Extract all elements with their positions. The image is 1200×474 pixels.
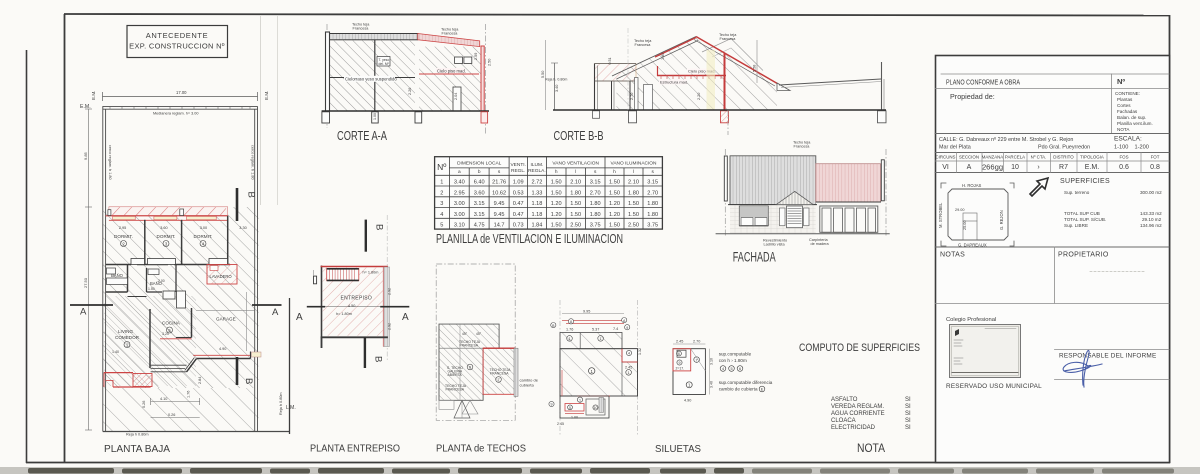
svg-text:1.80: 1.80 [647, 201, 658, 207]
svg-text:VANO ILUMINACION: VANO ILUMINACION [610, 161, 657, 167]
svg-text:Nº: Nº [437, 162, 446, 172]
svg-text:6: 6 [469, 366, 471, 370]
svg-text:10: 10 [594, 406, 598, 410]
svg-text:27.50: 27.50 [83, 277, 88, 288]
svg-text:2.95: 2.95 [454, 190, 465, 196]
svg-text:1.32: 1.32 [638, 348, 642, 355]
svg-text:NOTA: NOTA [1117, 127, 1130, 132]
svg-text:E.M.: E.M. [91, 91, 96, 100]
svg-text:PARCELA: PARCELA [1005, 155, 1025, 160]
svg-text:A: A [272, 307, 279, 318]
svg-text:2.26: 2.26 [408, 88, 412, 95]
svg-text:3.10: 3.10 [710, 358, 714, 365]
svg-text:h: h [555, 169, 558, 175]
svg-text:3.75: 3.75 [590, 223, 601, 229]
svg-text:Balan. de sup.: Balan. de sup. [1117, 115, 1146, 120]
svg-text:COMPUTO DE SUPERFICIES: COMPUTO DE SUPERFICIES [799, 342, 920, 354]
svg-text:VI: VI [942, 164, 949, 171]
svg-text:ILUM.: ILUM. [531, 162, 544, 168]
svg-text:FOT: FOT [1151, 155, 1160, 160]
svg-text:0.8: 0.8 [1150, 164, 1160, 171]
svg-text:1.20: 1.20 [551, 212, 562, 218]
svg-text:REGLA.: REGLA. [528, 168, 546, 174]
svg-text:cerco reglam. h 1.80: cerco reglam. h 1.80 [108, 145, 112, 180]
svg-text:B: B [373, 356, 384, 362]
svg-text:Pdo Gral. Pueyrredon: Pdo Gral. Pueyrredon [1038, 145, 1090, 151]
svg-text:4: 4 [440, 212, 443, 218]
svg-text:21.76: 21.76 [492, 180, 506, 186]
svg-text:2.45: 2.45 [557, 422, 564, 426]
svg-text:Francesa: Francesa [442, 32, 459, 36]
svg-text:1.50: 1.50 [551, 190, 562, 196]
svg-text:5.50: 5.50 [541, 71, 545, 78]
svg-text:Francesa: Francesa [720, 37, 737, 41]
svg-text:2.45: 2.45 [625, 366, 632, 370]
svg-text:3.40: 3.40 [555, 85, 559, 92]
svg-text:1: 1 [568, 337, 570, 341]
svg-text:1-100 1-200: 1-100 1-200 [1114, 145, 1149, 151]
svg-text:CORTE A-A: CORTE A-A [337, 128, 387, 143]
svg-text:SI: SI [905, 397, 911, 403]
svg-text:BAÑO: BAÑO [111, 273, 124, 278]
svg-text:29.00: 29.00 [955, 208, 965, 212]
svg-text:1.20: 1.20 [609, 201, 620, 207]
svg-text:CIRCUNS: CIRCUNS [935, 155, 955, 160]
svg-text:1.50: 1.50 [628, 201, 639, 207]
svg-text:0.53: 0.53 [513, 190, 524, 196]
svg-text:2.04: 2.04 [454, 93, 458, 100]
svg-text:ESCALA:: ESCALA: [1114, 136, 1142, 143]
svg-text:1.80: 1.80 [590, 212, 601, 218]
svg-text:1.76: 1.76 [187, 391, 191, 398]
svg-text:2.70: 2.70 [647, 190, 658, 196]
svg-text:Cortes: Cortes [1117, 103, 1131, 108]
svg-text:1.76: 1.76 [566, 328, 573, 332]
svg-text:5.58: 5.58 [753, 65, 757, 72]
svg-text:SI: SI [905, 418, 911, 424]
svg-text:9.95: 9.95 [583, 310, 590, 314]
svg-text:1.80: 1.80 [570, 190, 581, 196]
svg-text:9.45: 9.45 [494, 212, 505, 218]
svg-text:2.50: 2.50 [628, 223, 639, 229]
svg-text:cambio de cubierta: cambio de cubierta [719, 387, 758, 392]
svg-text:1.40: 1.40 [112, 350, 119, 354]
svg-text:6: 6 [678, 352, 680, 356]
svg-text:0.26: 0.26 [142, 401, 146, 408]
svg-text:25.00: 25.00 [963, 220, 967, 230]
svg-text:1.50: 1.50 [570, 212, 581, 218]
svg-text:NOTAS: NOTAS [940, 252, 965, 259]
svg-text:45°: 45° [476, 332, 482, 336]
svg-text:A: A [402, 312, 409, 323]
svg-text:Francesa: Francesa [794, 145, 811, 149]
svg-text:300.00 m2: 300.00 m2 [1140, 190, 1162, 195]
svg-text:8: 8 [570, 320, 572, 324]
svg-text:0.6: 0.6 [1119, 164, 1129, 171]
svg-text:Reja h. 0.80m: Reja h. 0.80m [545, 78, 567, 82]
svg-text:ABIERTA: ABIERTA [448, 373, 463, 377]
svg-text:1.00: 1.00 [373, 113, 377, 120]
svg-text:1.50: 1.50 [609, 180, 620, 186]
svg-text:DORMIT.: DORMIT. [194, 234, 213, 239]
svg-text:PLANTA de TECHOS: PLANTA de TECHOS [436, 444, 526, 455]
svg-text:LAVADERO: LAVADERO [210, 274, 233, 279]
svg-text:h= 1.80m: h= 1.80m [363, 271, 379, 275]
svg-text:2.59: 2.59 [474, 53, 478, 60]
svg-text:2.70: 2.70 [590, 190, 601, 196]
svg-text:1.50: 1.50 [609, 223, 620, 229]
svg-text:B: B [374, 224, 385, 230]
svg-text:1.50: 1.50 [148, 287, 155, 291]
svg-text:a: a [458, 170, 461, 175]
svg-text:3.15: 3.15 [647, 180, 658, 186]
svg-text:3.15: 3.15 [474, 212, 485, 218]
svg-text:COMEDOR: COMEDOR [115, 335, 140, 340]
svg-text:4.75: 4.75 [474, 223, 485, 229]
svg-text:CONTIENE:: CONTIENE: [1115, 91, 1140, 96]
svg-text:3.20: 3.20 [162, 332, 169, 336]
svg-text:45°: 45° [462, 332, 468, 336]
svg-text:del. Mº: del. Mº [379, 62, 390, 66]
svg-text:Reja h 0.80m: Reja h 0.80m [126, 433, 149, 437]
svg-text:Sup. terreno: Sup. terreno [1064, 190, 1090, 195]
svg-text:2.10: 2.10 [628, 180, 639, 186]
svg-text:3.75: 3.75 [647, 223, 658, 229]
svg-text:9.45: 9.45 [494, 201, 505, 207]
svg-text:RESPONSABLE DEL INFORME: RESPONSABLE DEL INFORME [1059, 353, 1156, 360]
svg-text:2: 2 [440, 190, 443, 196]
svg-text:B: B [246, 192, 257, 198]
svg-text:FRANCESA: FRANCESA [460, 344, 479, 348]
svg-text:SI: SI [905, 411, 911, 417]
svg-text:DORMIT.: DORMIT. [114, 234, 133, 239]
svg-text:PLANILLA de VENTILACION E ILUM: PLANILLA de VENTILACION E ILUMINACION [436, 232, 623, 246]
svg-text:Medianera reglam. h= 3.00: Medianera reglam. h= 3.00 [153, 112, 199, 116]
svg-text:3.30: 3.30 [239, 226, 246, 230]
svg-text:Estructura mad.: Estructura mad. [660, 80, 688, 85]
svg-text:Nº: Nº [1117, 77, 1125, 86]
svg-text:LIVING: LIVING [118, 329, 133, 334]
svg-text:1.80: 1.80 [590, 201, 601, 207]
svg-text:SECCION: SECCION [959, 155, 979, 160]
svg-text:9: 9 [679, 361, 681, 365]
svg-text:NOTA: NOTA [857, 443, 885, 455]
svg-text:COCINA: COCINA [162, 321, 181, 326]
svg-text:CLOACA: CLOACA [831, 418, 856, 424]
svg-text:134.96 m2: 134.96 m2 [1140, 223, 1162, 228]
svg-text:E.M.: E.M. [1085, 164, 1099, 171]
svg-text:DIMENSION LOCAL: DIMENSION LOCAL [457, 161, 502, 167]
svg-text:VANO VENTILACION: VANO VENTILACION [552, 161, 599, 167]
svg-text:4.90: 4.90 [219, 347, 226, 351]
svg-text:Cielo piso mad.: Cielo piso mad. [437, 69, 466, 74]
svg-text:6: 6 [739, 367, 741, 371]
svg-text:0.51: 0.51 [608, 58, 612, 65]
svg-text:h: h [613, 169, 616, 175]
svg-text:1.20: 1.20 [551, 201, 562, 207]
svg-text:1.80: 1.80 [647, 212, 658, 218]
svg-text:4: 4 [628, 352, 630, 356]
svg-text:0.26: 0.26 [168, 413, 175, 417]
svg-text:1.18: 1.18 [531, 201, 542, 207]
svg-text:L.M.: L.M. [286, 405, 296, 411]
svg-text:2=17.: 2=17. [676, 367, 685, 371]
svg-text:1.84: 1.84 [531, 223, 542, 229]
svg-text:266gg: 266gg [982, 163, 1003, 172]
svg-text:H. ROJAS: H. ROJAS [962, 183, 982, 188]
svg-text:1.50: 1.50 [551, 223, 562, 229]
svg-text:Plantas: Plantas [1117, 97, 1133, 102]
svg-text:FACHADA: FACHADA [733, 250, 776, 265]
svg-text:Propiedad de:: Propiedad de: [950, 92, 995, 101]
svg-text:7.4: 7.4 [613, 327, 618, 331]
svg-text:Cielorraso yeso suspendido: Cielorraso yeso suspendido [345, 77, 397, 82]
svg-text:A: A [296, 312, 303, 323]
svg-text:Nº CTA.: Nº CTA. [1031, 155, 1047, 160]
svg-text:DORMIT.: DORMIT. [157, 234, 176, 239]
svg-text:9.85: 9.85 [83, 151, 88, 160]
svg-text:4.10: 4.10 [160, 397, 167, 401]
svg-text:17.00: 17.00 [176, 90, 187, 95]
svg-text:Mar del Plata: Mar del Plata [939, 145, 971, 151]
svg-text:29.10 m2: 29.10 m2 [1142, 217, 1162, 222]
svg-text:4: 4 [722, 367, 724, 371]
svg-text:con h › 1.80m: con h › 1.80m [719, 358, 747, 363]
svg-text:0.47: 0.47 [513, 212, 524, 218]
svg-text:1: 1 [600, 337, 602, 341]
svg-text:ANTECEDENTE: ANTECEDENTE [146, 31, 208, 40]
svg-text:Ladrillo vista: Ladrillo vista [764, 243, 786, 247]
svg-text:VENTI.: VENTI. [510, 162, 525, 168]
svg-text:b: b [478, 169, 481, 175]
svg-text:2.70: 2.70 [630, 93, 634, 100]
svg-text:l: l [575, 169, 576, 175]
svg-text:3.15: 3.15 [590, 180, 601, 186]
svg-text:sup.computable diferencia: sup.computable diferencia [719, 380, 773, 385]
svg-text:FOS: FOS [1119, 155, 1128, 160]
svg-text:1.50: 1.50 [551, 180, 562, 186]
svg-text:Planilla vent.ilum.: Planilla vent.ilum. [1117, 121, 1153, 126]
svg-text:SILUETAS: SILUETAS [655, 443, 701, 455]
svg-text:E: E [761, 388, 764, 392]
svg-text:h= 1.80m: h= 1.80m [336, 312, 352, 316]
svg-text:l: l [633, 169, 634, 175]
svg-text:A: A [80, 307, 87, 318]
svg-text:ASFALTO: ASFALTO [831, 397, 858, 403]
svg-text:FRANCESA: FRANCESA [446, 388, 465, 392]
svg-text:2.20: 2.20 [697, 93, 701, 100]
svg-text:1.50: 1.50 [609, 190, 620, 196]
svg-text:2.92: 2.92 [388, 288, 392, 295]
svg-text:FRANCESA: FRANCESA [490, 372, 509, 376]
svg-text:PLANTA BAJA: PLANTA BAJA [104, 443, 170, 455]
svg-text:REGL.: REGL. [511, 168, 525, 174]
svg-text:1.33: 1.33 [531, 190, 542, 196]
svg-text:ELECTRICIDAD: ELECTRICIDAD [831, 425, 876, 431]
svg-text:3: 3 [440, 201, 443, 207]
svg-text:GARAGE: GARAGE [216, 317, 236, 322]
svg-text:RESERVADO USO MUNICIPAL: RESERVADO USO MUNICIPAL [946, 383, 1042, 390]
svg-text:SUPERFICIES: SUPERFICIES [1060, 178, 1110, 185]
svg-text:E.M.: E.M. [264, 91, 269, 100]
svg-text:1.50: 1.50 [628, 212, 639, 218]
svg-text:3.60: 3.60 [160, 226, 167, 230]
svg-text:5: 5 [730, 367, 732, 371]
svg-text:DISTRITO: DISTRITO [1053, 155, 1074, 160]
svg-text:10.62: 10.62 [492, 190, 506, 196]
svg-text:2.92: 2.92 [388, 323, 392, 330]
svg-text:de madera: de madera [811, 242, 830, 246]
svg-text:R7: R7 [1059, 164, 1068, 171]
svg-text:5.37: 5.37 [592, 328, 599, 332]
svg-text:5: 5 [569, 406, 571, 410]
svg-text:3.40: 3.40 [454, 180, 465, 186]
svg-text:4.90: 4.90 [684, 399, 691, 403]
svg-text:3.00: 3.00 [454, 212, 465, 218]
svg-text:AGUA CORRIENTE: AGUA CORRIENTE [831, 411, 885, 417]
svg-text:9: 9 [551, 403, 553, 407]
svg-text:CORTE B-B: CORTE B-B [554, 128, 604, 143]
svg-text:1.50: 1.50 [570, 201, 581, 207]
svg-text:TOTAL SUP. S/CUB.: TOTAL SUP. S/CUB. [1064, 217, 1106, 222]
svg-text:3.10: 3.10 [454, 223, 465, 229]
svg-text:0.73: 0.73 [513, 223, 524, 229]
svg-text:CALLE: G. Dabreaux nº 2: CALLE: G. Dabreaux nº 229 entre M. Strob… [939, 137, 1073, 143]
svg-text:sup.computable: sup.computable [719, 352, 752, 357]
svg-text:2.00: 2.00 [158, 279, 165, 283]
svg-text:2.45: 2.45 [676, 340, 683, 344]
svg-text:2.50: 2.50 [570, 223, 581, 229]
svg-text:1.80: 1.80 [628, 190, 639, 196]
svg-text:Francesa: Francesa [635, 43, 652, 47]
svg-text:cubierta: cubierta [520, 383, 535, 388]
svg-text:TIPOLOGIA: TIPOLOGIA [1080, 155, 1104, 160]
svg-text:1.00: 1.00 [571, 416, 578, 420]
svg-text:M. STROBEL: M. STROBEL [938, 202, 943, 228]
svg-text:1.18: 1.18 [531, 212, 542, 218]
svg-text:3.00: 3.00 [454, 201, 465, 207]
svg-text:TOTAL SUP CUB: TOTAL SUP CUB [1064, 211, 1100, 216]
svg-text:G. REJON: G. REJON [999, 210, 1004, 230]
svg-text:SI: SI [905, 425, 911, 431]
svg-text:1: 1 [440, 180, 443, 186]
svg-text:3.60: 3.60 [474, 190, 485, 196]
svg-text:3.15: 3.15 [474, 201, 485, 207]
svg-text:1.20: 1.20 [609, 212, 620, 218]
svg-text:Colegio Profesional: Colegio Profesional [946, 317, 996, 323]
svg-text:6.40: 6.40 [474, 180, 485, 186]
svg-text:Sup. LIBRE: Sup. LIBRE [1064, 223, 1088, 228]
svg-text:5: 5 [440, 223, 443, 229]
svg-text:PLANO CONFORME A OBRA: PLANO CONFORME A OBRA [946, 78, 1020, 87]
svg-text:1: 1 [628, 371, 630, 375]
svg-text:2.50: 2.50 [488, 59, 492, 66]
svg-text:Francesa: Francesa [353, 27, 370, 31]
svg-text:PLANTA ENTREPISO: PLANTA ENTREPISO [310, 444, 400, 455]
svg-text:2.95: 2.95 [119, 226, 126, 230]
svg-text:1.09: 1.09 [513, 180, 524, 186]
svg-text:2.84: 2.84 [198, 377, 202, 384]
svg-text:7: 7 [497, 378, 499, 382]
svg-text:PROPIETARIO: PROPIETARIO [1058, 252, 1109, 259]
svg-text:1.80: 1.80 [661, 53, 665, 60]
svg-text:3.00: 3.00 [200, 226, 207, 230]
svg-text:VEREDA REGLAM.: VEREDA REGLAM. [831, 404, 884, 410]
svg-text:2.72: 2.72 [531, 180, 542, 186]
svg-text:cerco reglam. h 1.80: cerco reglam. h 1.80 [251, 145, 255, 180]
svg-text:143.33 m2: 143.33 m2 [1140, 211, 1162, 216]
svg-text:B: B [243, 378, 254, 384]
svg-text:2.10: 2.10 [570, 180, 581, 186]
svg-text:9: 9 [626, 326, 628, 330]
svg-text:10: 10 [1011, 164, 1019, 171]
svg-text:1: 1 [579, 398, 581, 402]
svg-text:14.7: 14.7 [494, 223, 505, 229]
svg-text:ENTREPISO: ENTREPISO [341, 296, 373, 302]
svg-text:Fachadas: Fachadas [1117, 109, 1138, 114]
svg-text:2.70: 2.70 [693, 340, 700, 344]
svg-text:SI: SI [905, 404, 911, 410]
svg-text:Reja h 0.80m: Reja h 0.80m [279, 392, 283, 415]
svg-text:EXP. CONSTRUCCION Nº: EXP. CONSTRUCCION Nº [129, 42, 225, 51]
svg-text:MANZANA: MANZANA [982, 155, 1004, 160]
svg-text:4.50: 4.50 [348, 304, 355, 308]
svg-text:3.40: 3.40 [710, 381, 714, 388]
svg-text:0.47: 0.47 [513, 201, 524, 207]
svg-text:A: A [967, 164, 972, 171]
